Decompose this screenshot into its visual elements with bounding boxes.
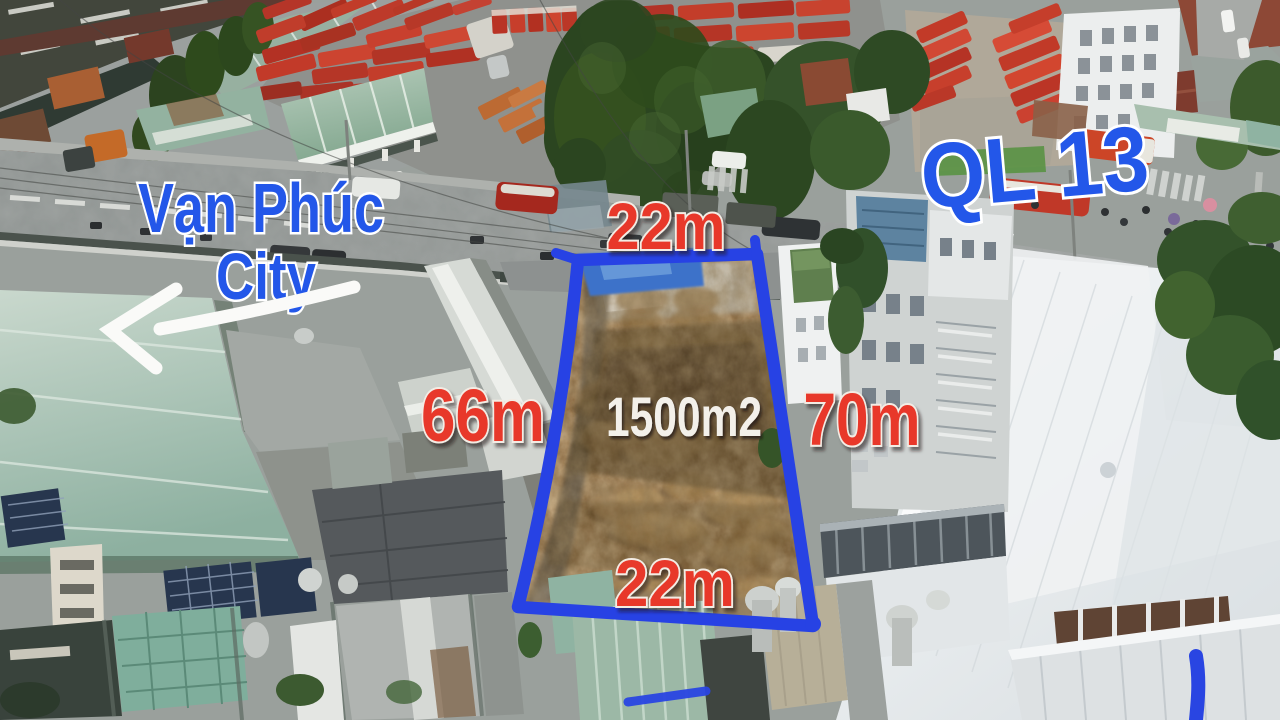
svg-text:22m: 22m	[615, 546, 735, 620]
svg-text:66m: 66m	[421, 374, 545, 457]
svg-text:70m: 70m	[804, 378, 921, 461]
svg-text:QL 13: QL 13	[917, 107, 1153, 228]
svg-text:Vạn Phúc: Vạn Phúc	[138, 169, 384, 247]
svg-text:1500m2: 1500m2	[606, 385, 762, 448]
svg-text:22m: 22m	[607, 189, 726, 263]
